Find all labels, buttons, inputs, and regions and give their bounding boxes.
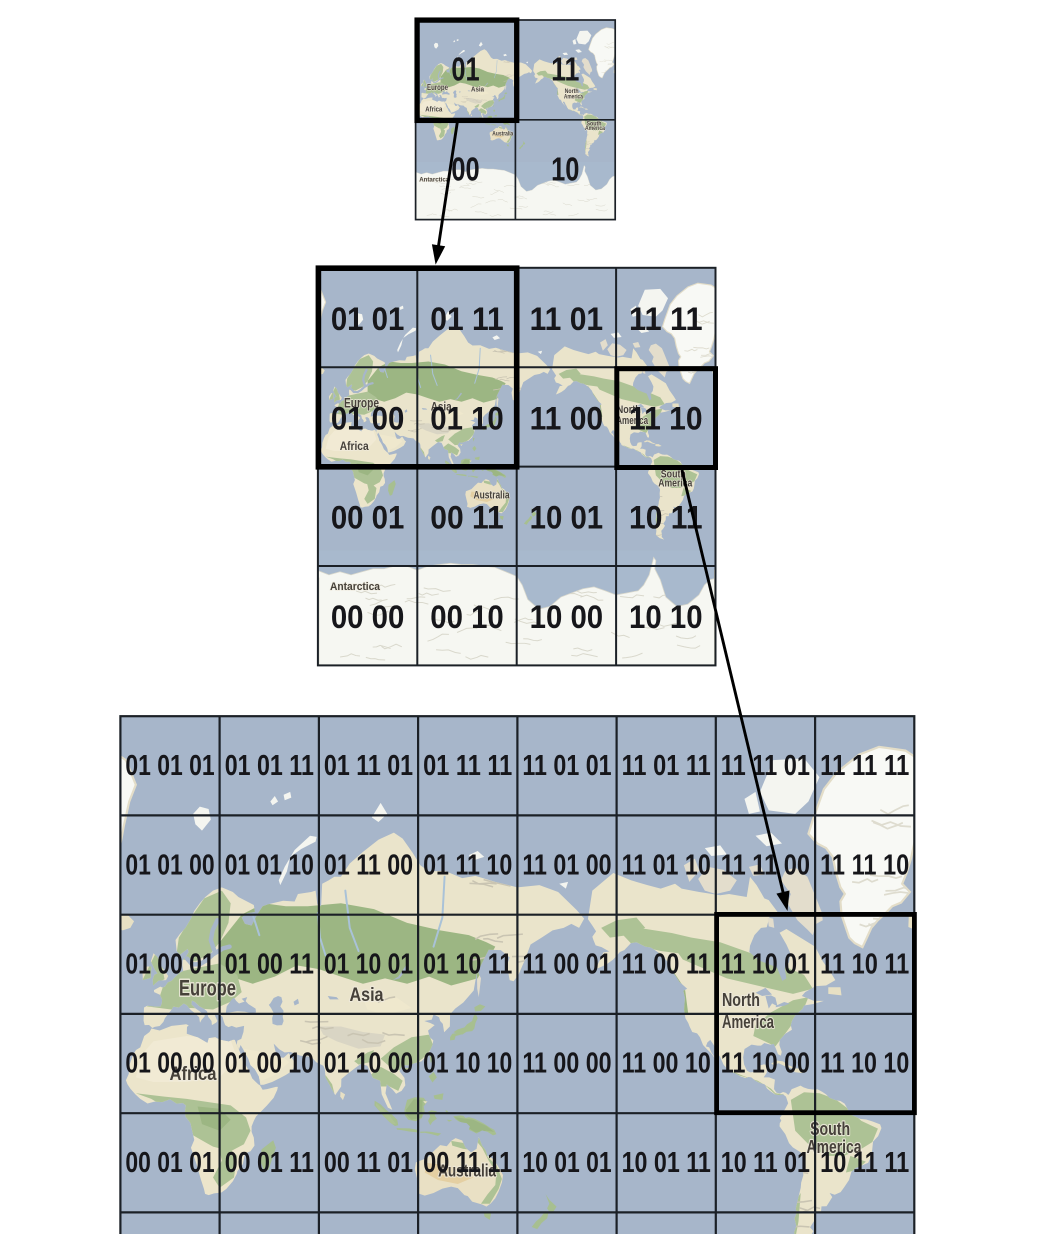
svg-text:01 01 11: 01 01 11 [225,750,314,782]
svg-text:01 00 01: 01 00 01 [125,949,214,981]
svg-text:Asia: Asia [350,985,384,1006]
svg-text:01 11 00: 01 11 00 [324,849,413,881]
svg-text:01 10 10: 01 10 10 [423,1048,512,1080]
svg-text:00: 00 [451,150,479,187]
svg-text:10 00: 10 00 [530,599,604,635]
svg-text:01 01 00: 01 01 00 [125,849,214,881]
svg-text:Europe: Europe [427,83,448,92]
svg-text:11 10 00: 11 10 00 [721,1048,810,1080]
svg-text:America: America [585,125,605,132]
svg-text:00 01: 00 01 [331,500,405,536]
svg-text:Asia: Asia [471,87,484,94]
svg-text:11 00: 11 00 [530,400,604,436]
svg-text:Africa: Africa [425,106,442,113]
svg-text:10: 10 [551,150,579,187]
svg-text:01: 01 [451,51,479,88]
svg-text:00 11 01: 00 11 01 [324,1147,413,1179]
svg-text:11 00 00: 11 00 00 [522,1048,611,1080]
svg-text:00 01 01: 00 01 01 [125,1147,214,1179]
svg-text:Australia: Australia [492,131,513,138]
svg-text:00 01 11: 00 01 11 [225,1147,314,1179]
svg-text:Africa: Africa [340,439,369,453]
svg-text:01 00: 01 00 [331,400,405,436]
svg-text:11 11: 11 11 [629,301,703,337]
svg-text:01 11 10: 01 11 10 [423,849,512,881]
svg-text:00 00: 00 00 [331,599,405,635]
svg-text:Antarctica: Antarctica [330,581,381,593]
svg-text:01 11 01: 01 11 01 [324,750,413,782]
svg-text:01 00 10: 01 00 10 [225,1048,314,1080]
svg-text:10 01 01: 10 01 01 [522,1147,611,1179]
svg-text:11 11 11: 11 11 11 [820,750,909,782]
svg-text:11 00 11: 11 00 11 [622,949,711,981]
svg-text:10 11 11: 10 11 11 [820,1147,909,1179]
svg-text:11 11 00: 11 11 00 [721,849,810,881]
svg-text:01 01 01: 01 01 01 [125,750,214,782]
svg-text:01 00 00: 01 00 00 [125,1048,214,1080]
svg-text:01 11 11: 01 11 11 [423,750,512,782]
svg-text:00 10: 00 10 [430,599,504,635]
svg-text:11 01 00: 11 01 00 [522,849,611,881]
svg-text:11 01: 11 01 [530,301,604,337]
svg-text:10 11 01: 10 11 01 [721,1147,810,1179]
svg-text:11 10 10: 11 10 10 [820,1048,909,1080]
svg-text:01 10 11: 01 10 11 [423,949,512,981]
svg-text:Antarctica: Antarctica [419,177,449,184]
svg-text:11 10: 11 10 [629,400,703,436]
svg-text:11 10 01: 11 10 01 [721,949,810,981]
svg-text:01 10 01: 01 10 01 [324,949,413,981]
svg-text:11: 11 [551,51,579,88]
svg-text:01 00 11: 01 00 11 [225,949,314,981]
svg-text:01 01: 01 01 [331,301,405,337]
svg-text:11 00 01: 11 00 01 [522,949,611,981]
svg-text:10 01: 10 01 [530,500,604,536]
svg-text:01 10: 01 10 [430,400,504,436]
svg-text:11 11 01: 11 11 01 [721,750,810,782]
svg-text:01 11: 01 11 [430,301,504,337]
svg-text:11 11 10: 11 11 10 [820,849,909,881]
svg-text:America: America [564,93,583,100]
svg-text:North: North [722,990,760,1010]
svg-text:01 01 10: 01 01 10 [225,849,314,881]
svg-text:01 10 00: 01 10 00 [324,1048,413,1080]
svg-text:00 11 11: 00 11 11 [423,1147,512,1179]
svg-text:11 10 11: 11 10 11 [820,949,909,981]
svg-text:10 01 11: 10 01 11 [622,1147,711,1179]
svg-text:00 11: 00 11 [430,500,504,536]
svg-text:11 00 10: 11 00 10 [622,1048,711,1080]
svg-text:11 01 11: 11 01 11 [622,750,711,782]
svg-text:11 01 01: 11 01 01 [522,750,611,782]
svg-text:11 01 10: 11 01 10 [622,849,711,881]
svg-text:10 10: 10 10 [629,599,703,635]
